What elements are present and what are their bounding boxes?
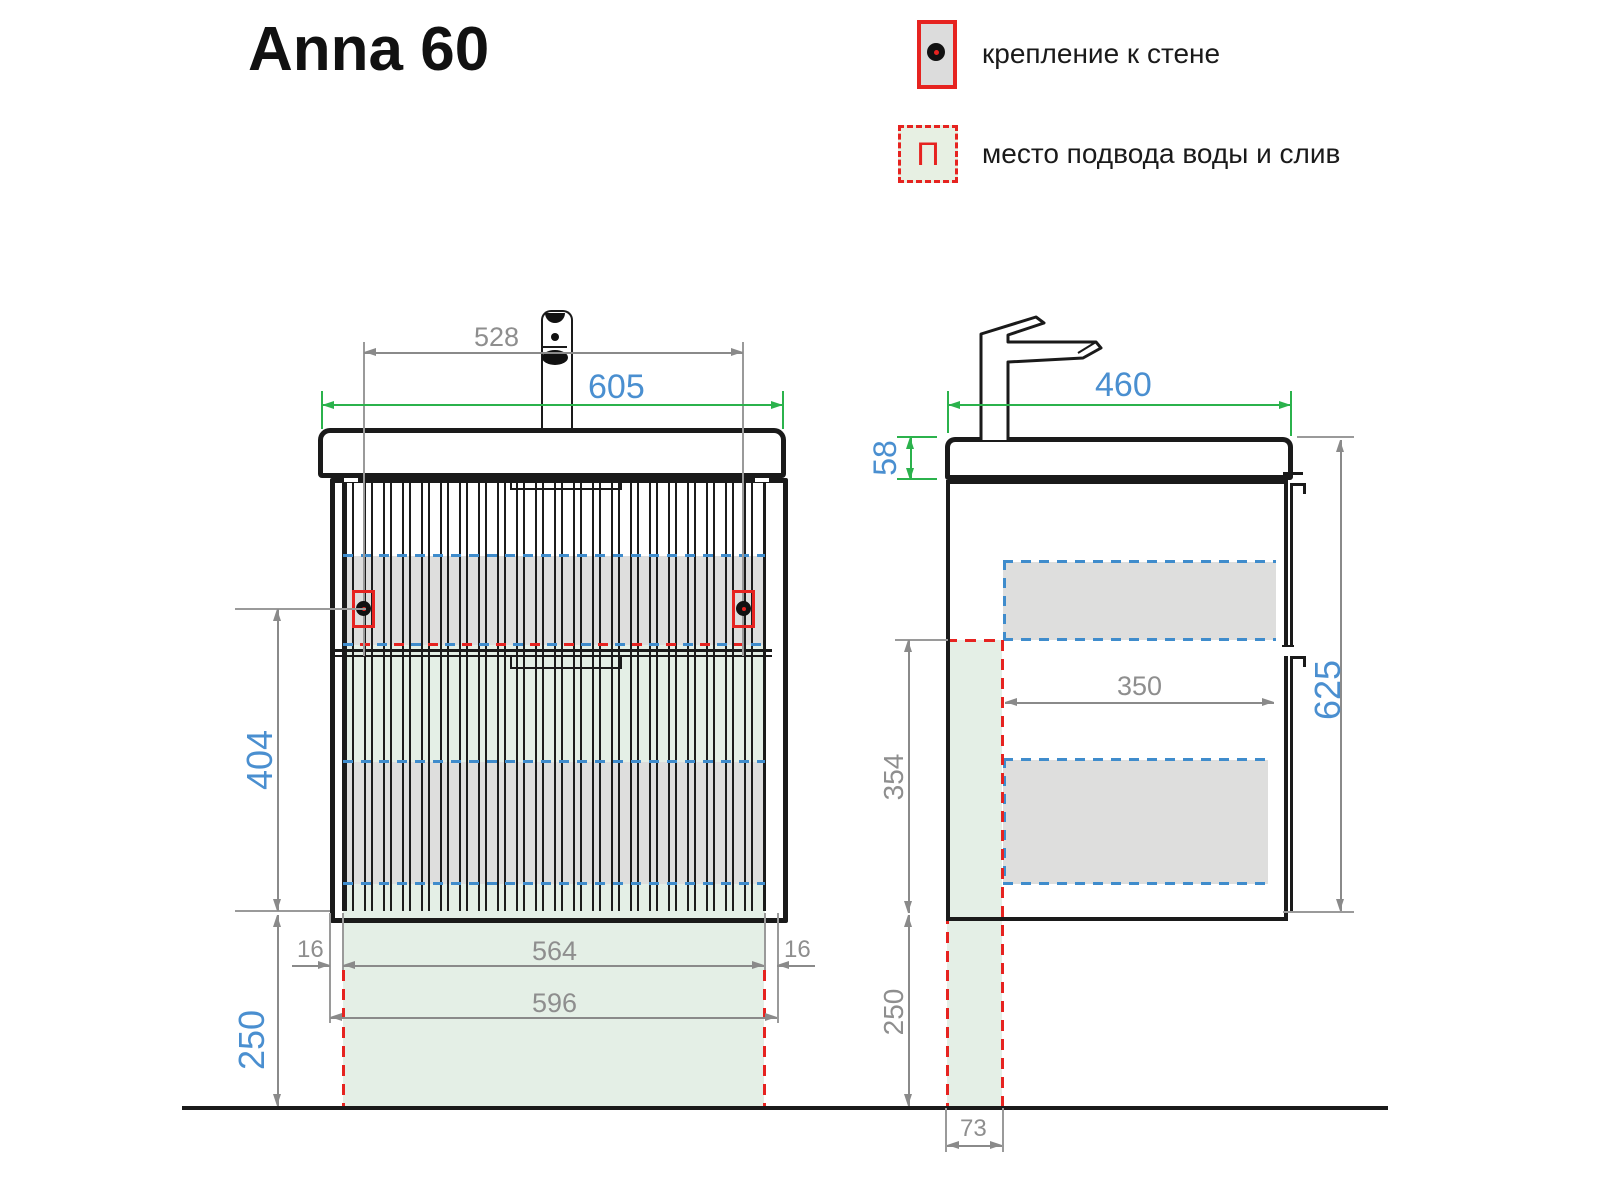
arrow-250s-bottom bbox=[904, 1094, 912, 1106]
legend-wall-mount-label: крепление к стене bbox=[982, 38, 1220, 70]
wall-mount-marker-right-core bbox=[742, 607, 746, 611]
arrow-625-top bbox=[1336, 440, 1344, 452]
arrow-404-bottom bbox=[273, 899, 281, 911]
ext-404-top bbox=[235, 608, 366, 610]
water-zone-dash-right-front bbox=[763, 970, 766, 1106]
dim-label-sink-width: 605 bbox=[588, 368, 645, 407]
ext-354-top bbox=[895, 639, 948, 641]
ext-564-right bbox=[764, 913, 766, 971]
door-handle-mid bbox=[1291, 656, 1306, 667]
dim-label-side-panel-right: 16 bbox=[784, 936, 811, 964]
water-zone-dash-left-side bbox=[946, 913, 949, 1106]
legend-water-supply-label: место подвода воды и слив bbox=[982, 138, 1340, 170]
floor-line bbox=[182, 1106, 1388, 1110]
technical-drawing-anna60: Anna 60 крепление к стене П место подвод… bbox=[0, 0, 1600, 1200]
arrow-596-right bbox=[765, 1013, 777, 1021]
dim-label-sink-depth: 460 bbox=[1095, 366, 1152, 405]
tick-605-left bbox=[321, 391, 323, 429]
arrow-460-left bbox=[948, 401, 960, 409]
arrow-250s-top bbox=[904, 915, 912, 927]
water-supply-icon-symbol: П bbox=[898, 125, 958, 183]
dim-label-drain-offset: 73 bbox=[960, 1115, 987, 1143]
door-panel-inner-line bbox=[1284, 483, 1286, 911]
ext-73-right bbox=[1002, 1108, 1004, 1152]
dim-line-250-front bbox=[277, 915, 279, 1106]
arrow-58-top bbox=[906, 437, 914, 449]
faucet-front-seam bbox=[543, 346, 567, 348]
door-handle-top bbox=[1291, 483, 1306, 494]
ext-404-bottom bbox=[235, 910, 330, 912]
dim-label-total-height: 625 bbox=[1307, 620, 1349, 760]
ext-625-top bbox=[1297, 436, 1354, 438]
faucet-front-body bbox=[541, 310, 573, 432]
arrow-605-left bbox=[322, 401, 334, 409]
arrow-404-top bbox=[273, 609, 281, 621]
arrow-605-right bbox=[771, 401, 783, 409]
sink-side-lip bbox=[1283, 472, 1303, 475]
dim-line-605 bbox=[322, 404, 783, 406]
arrow-460-right bbox=[1279, 401, 1291, 409]
arrow-58-bottom bbox=[906, 468, 914, 480]
arrow-528-left bbox=[364, 348, 376, 356]
dim-label-cabinet-width: 596 bbox=[532, 988, 577, 1019]
dim-label-side-panel-left: 16 bbox=[297, 936, 324, 964]
tick-605-right bbox=[782, 391, 784, 429]
arrow-250f-bottom bbox=[273, 1094, 281, 1106]
arrow-528-right bbox=[731, 348, 743, 356]
door-gap-line bbox=[1282, 645, 1294, 647]
arrow-350-left bbox=[1005, 698, 1017, 706]
tick-460-left bbox=[947, 391, 949, 433]
door-panel-outer-line bbox=[1290, 483, 1293, 911]
dim-label-faucet-span: 528 bbox=[474, 322, 519, 353]
arrow-625-bottom bbox=[1336, 899, 1344, 911]
arrow-564-left bbox=[343, 961, 355, 969]
dim-label-mount-zone-height: 354 bbox=[873, 707, 915, 847]
dim-label-floor-clearance-side: 250 bbox=[873, 942, 915, 1082]
sink-side bbox=[945, 437, 1293, 480]
dim-label-floor-clearance-front: 250 bbox=[231, 970, 273, 1110]
dim-line-350 bbox=[1005, 702, 1274, 704]
arrow-350-right bbox=[1262, 698, 1274, 706]
arrow-354-top bbox=[904, 640, 912, 652]
arrow-354-bottom bbox=[904, 901, 912, 913]
page-title: Anna 60 bbox=[248, 14, 489, 85]
wall-mount-icon-dot-core bbox=[934, 50, 939, 55]
cabinet-outline-front bbox=[330, 478, 788, 923]
dim-label-body-height: 404 bbox=[239, 690, 281, 830]
door-gap bbox=[1282, 647, 1294, 656]
arrow-564-right bbox=[752, 961, 764, 969]
faucet-side bbox=[940, 300, 1120, 440]
dim-label-inner-depth: 350 bbox=[1117, 671, 1162, 702]
arrow-73-left bbox=[947, 1141, 959, 1149]
arrow-73-right bbox=[990, 1141, 1002, 1149]
tick-460-right bbox=[1290, 391, 1292, 436]
arrow-250f-top bbox=[273, 915, 281, 927]
faucet-front-dot bbox=[551, 333, 559, 341]
arrow-596-left bbox=[330, 1013, 342, 1021]
ext-625-bottom bbox=[1283, 911, 1354, 913]
dim-label-inner-width: 564 bbox=[532, 936, 577, 967]
dim-label-sink-height: 58 bbox=[864, 388, 906, 528]
dim-line-528 bbox=[364, 352, 743, 354]
water-zone-dash-left-front bbox=[342, 970, 345, 1106]
sink-front bbox=[318, 428, 786, 478]
